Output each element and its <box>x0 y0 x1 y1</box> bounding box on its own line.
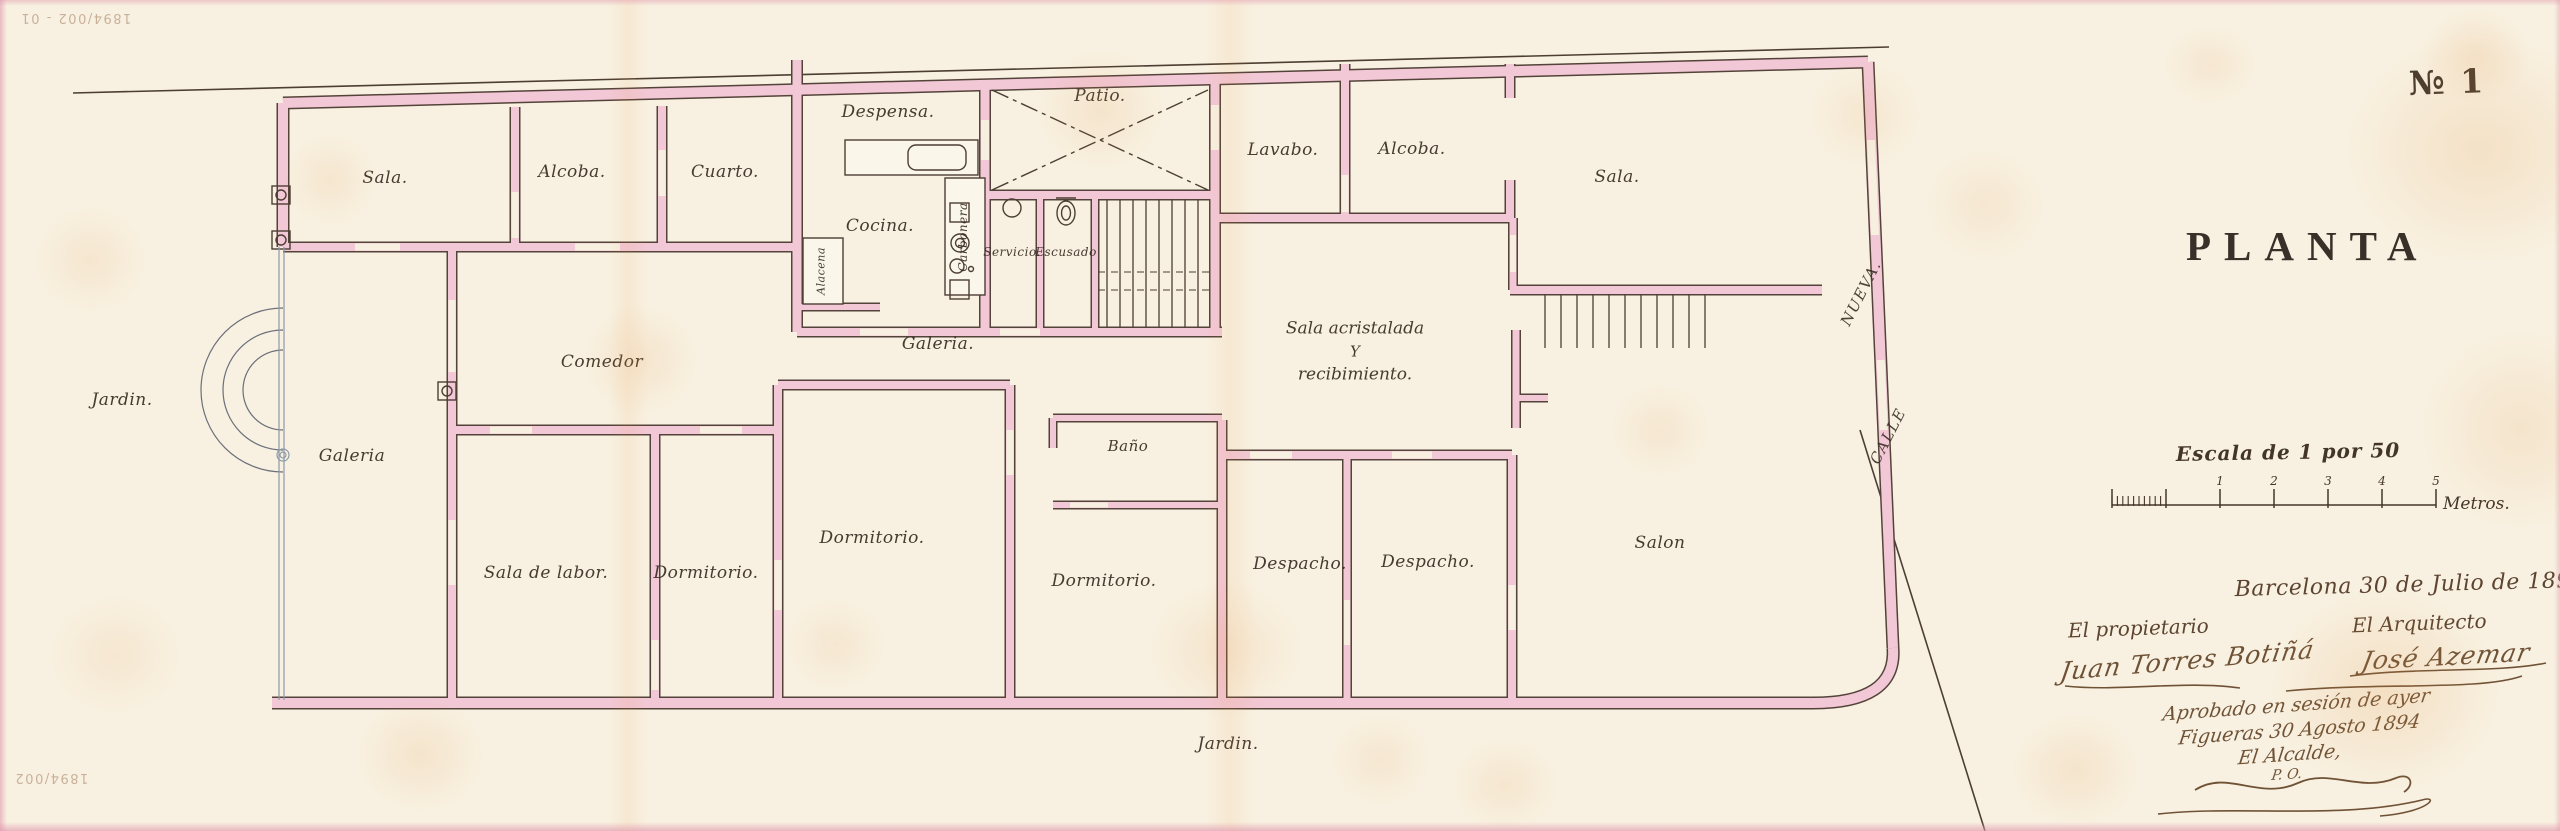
room-label-sala-left: Sala. <box>362 168 407 188</box>
room-label-sala-right: Sala. <box>1594 167 1639 187</box>
room-label-servicio: Servicio. <box>983 245 1041 259</box>
scale-tick-number: 4 <box>2378 474 2386 488</box>
room-label-patio: Patio. <box>1074 86 1125 106</box>
room-label-salon: Salon <box>1635 533 1686 553</box>
room-label-sala-acristalada: Sala acristalada Y recibimiento. <box>1286 318 1424 387</box>
scale-unit-label: Metros. <box>2443 494 2510 514</box>
room-label-comedor: Comedor <box>561 352 643 372</box>
architect-heading: El Arquitecto <box>2352 609 2487 638</box>
archive-note-top: 1894/002 - 01 <box>20 10 131 25</box>
scale-tick-number: 1 <box>2216 474 2224 488</box>
scale-tick-number: 2 <box>2270 474 2278 488</box>
room-label-line: Sala acristalada <box>1286 318 1424 341</box>
scale-tick-number: 5 <box>2432 474 2440 488</box>
room-label-escusado: Escusado <box>1035 245 1097 259</box>
wall-opening <box>1871 140 1875 235</box>
room-label-alcoba-right: Alcoba. <box>1378 139 1445 159</box>
scale-tick-number: 3 <box>2324 474 2332 488</box>
room-label-sala-de-labor: Sala de labor. <box>484 563 608 583</box>
room-label-alcoba-left: Alcoba. <box>538 162 605 182</box>
room-label-galeria-left: Galeria <box>319 446 385 466</box>
gallery-glass-wall <box>277 247 289 700</box>
column-symbol <box>272 186 456 400</box>
site-lines <box>73 47 1985 831</box>
room-label-alacena: Alacena <box>815 247 828 295</box>
room-label-dormitorio-1: Dormitorio. <box>653 563 758 583</box>
archive-note-bottom: 1894/002 <box>14 770 88 785</box>
room-label-lavabo: Lavabo. <box>1248 140 1319 160</box>
drawing-title: PLANTA <box>2186 222 2430 270</box>
room-label-despensa: Despensa. <box>841 102 934 122</box>
walls-fill-layer <box>272 60 1893 703</box>
room-label-jardin-bottom: Jardin. <box>1197 734 1258 754</box>
room-label-despacho-2: Despacho. <box>1381 552 1475 572</box>
washbasin <box>1003 199 1021 217</box>
room-label-banio: Baño <box>1108 437 1149 455</box>
room-label-line: Y <box>1286 341 1424 364</box>
garden-bay-arcs <box>201 308 283 472</box>
room-label-galeria-center: Galeria. <box>902 334 974 354</box>
room-label-dormitorio-3: Dormitorio. <box>1051 571 1156 591</box>
room-label-cocina: Cocina. <box>846 216 914 236</box>
street-edge-line <box>1860 430 1985 831</box>
sheet-number: № 1 <box>2408 61 2486 103</box>
room-label-despacho-1: Despacho. <box>1253 554 1347 574</box>
owner-heading: El propietario <box>2068 614 2210 643</box>
room-label-dormitorio-2: Dormitorio. <box>819 528 924 548</box>
room-label-cuarto: Cuarto. <box>691 162 759 182</box>
room-label-line: recibimiento. <box>1286 364 1424 387</box>
room-label-jardin-left: Jardin. <box>91 390 152 410</box>
plan-sheet: Sala.Alcoba.Cuarto.Despensa.Cocina.Carbo… <box>0 0 2560 831</box>
wall-opening <box>1881 360 1884 430</box>
approval-note: Aprobado en sesión de ayer Figueras 30 A… <box>2162 685 2435 791</box>
toilet <box>1057 201 1075 225</box>
room-label-carbonera: Carbonera <box>956 202 970 271</box>
scale-heading: Escala de 1 por 50 <box>2176 438 2401 466</box>
owner-signature-flourish <box>2065 685 2240 688</box>
scale-bar <box>2112 489 2436 508</box>
toilet <box>1062 206 1071 220</box>
alcalde-signature-flourish <box>2158 799 2430 816</box>
